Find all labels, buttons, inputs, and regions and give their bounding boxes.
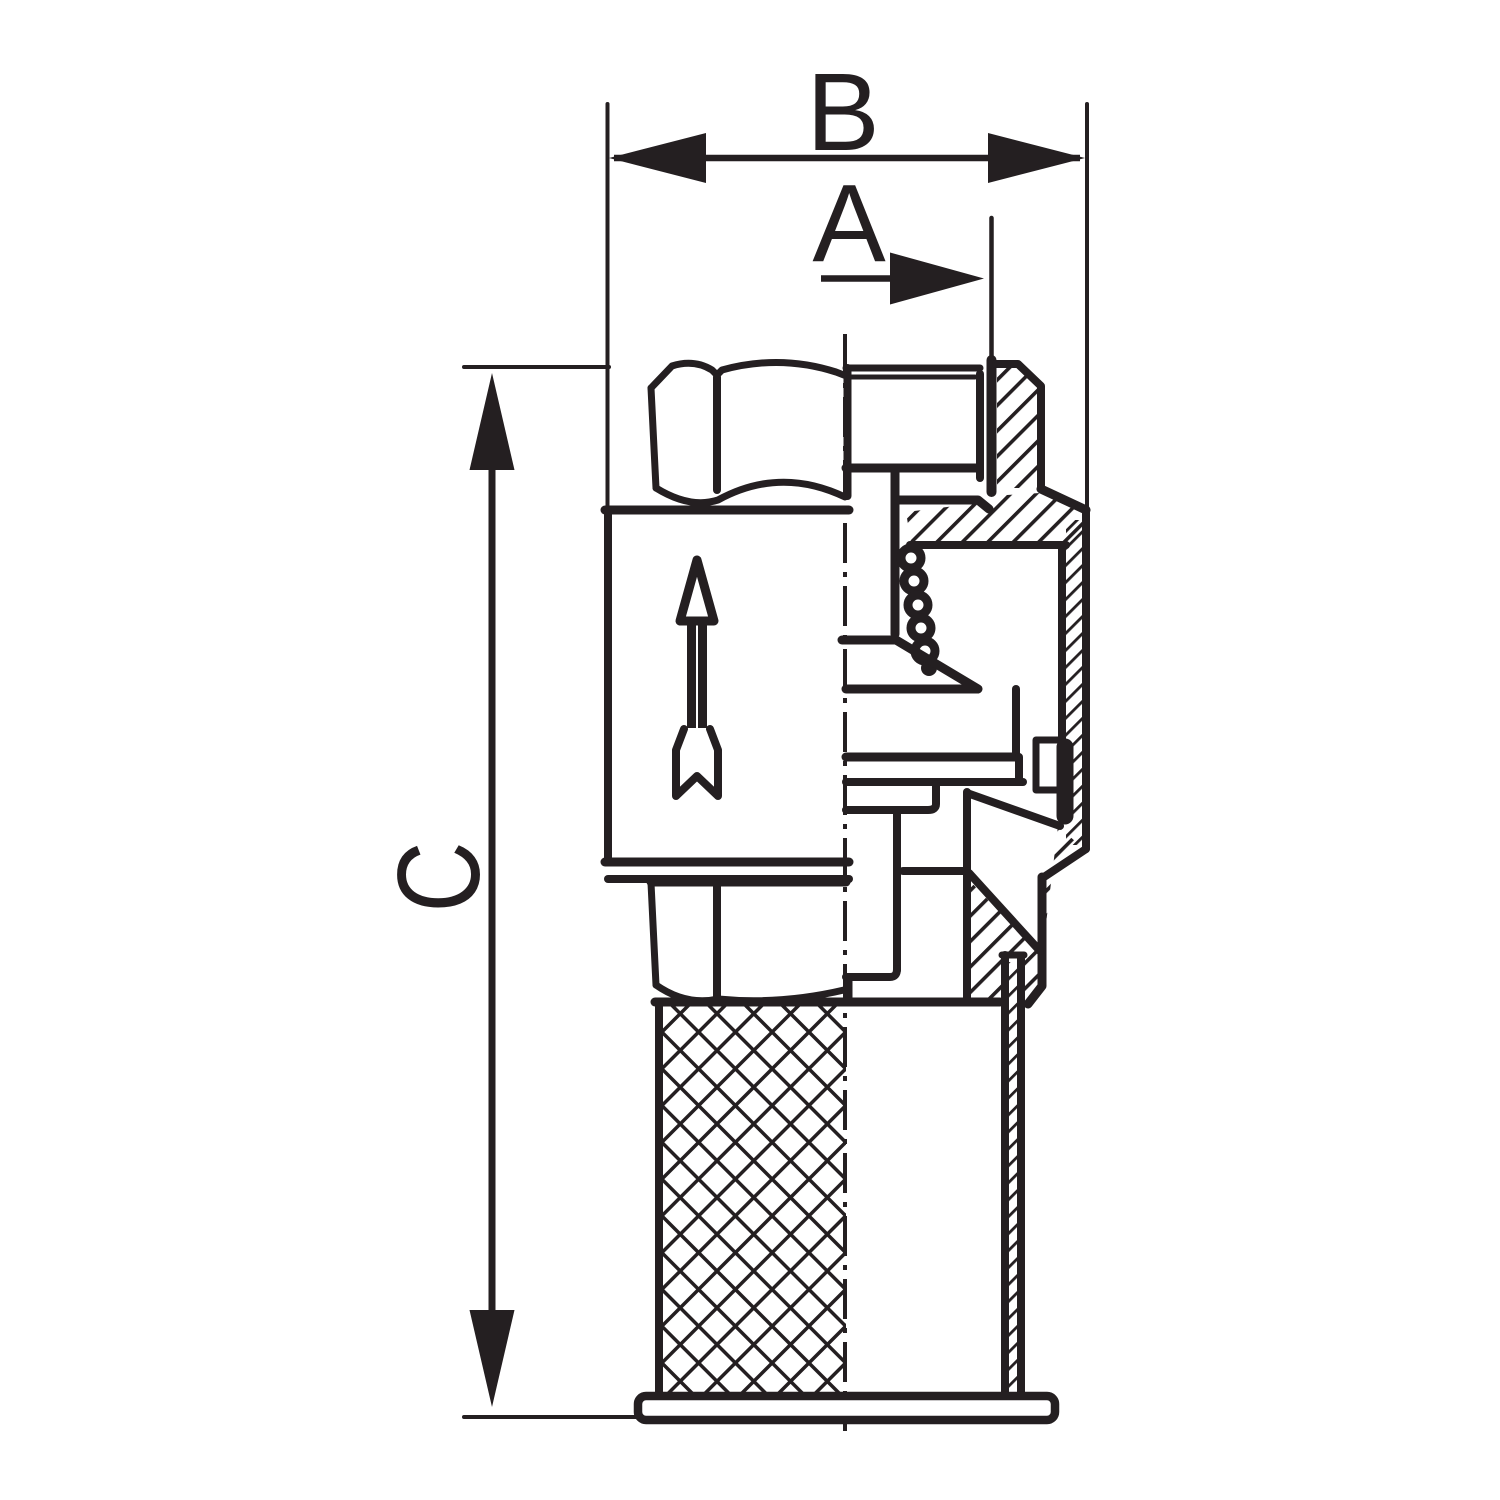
svg-text:C: C [373,842,504,913]
svg-text:A: A [812,162,886,285]
